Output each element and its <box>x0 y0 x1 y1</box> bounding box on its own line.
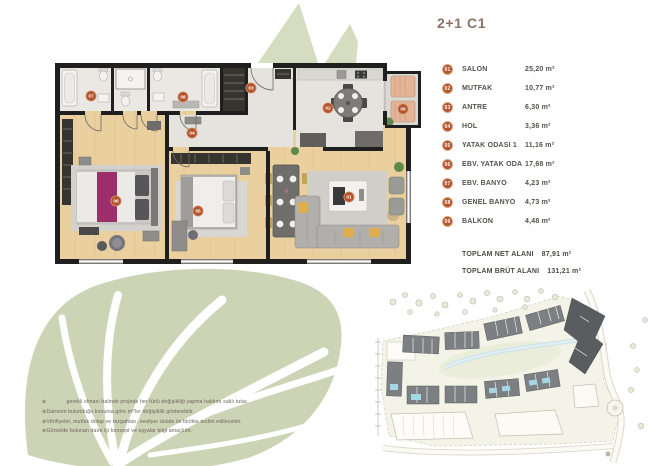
disclaimer-line: ⊛ gerekli olması halinde projede her tür… <box>42 398 248 408</box>
room-number-badge: 02 <box>442 83 453 94</box>
sink <box>153 93 164 101</box>
site-plan <box>375 286 660 464</box>
desk-chair <box>188 230 198 240</box>
disclaimer-line: ⊛Dairenin bulunduğu konuma göre m²'ler d… <box>42 408 248 418</box>
room-label: EBV. BANYO <box>462 180 525 187</box>
room-area: 4,48 m² <box>525 218 551 225</box>
plan-badge-yatak-odasi: 05 <box>193 206 203 216</box>
floor-plan: 01 02 03 04 05 06 07 08 09 <box>55 63 423 265</box>
room-number-badge: 09 <box>442 216 453 227</box>
bathtub <box>62 70 77 106</box>
site-plan-svg <box>375 286 660 464</box>
legend-row: 03ANTRE6,30 m² <box>442 98 555 117</box>
room-area: 4,73 m² <box>525 199 551 206</box>
legend-row: 09BALKON4,48 m² <box>442 212 555 231</box>
room-label: MUTFAK <box>462 85 525 92</box>
room-area: 10,77 m² <box>525 85 555 92</box>
svg-text:02: 02 <box>325 106 331 112</box>
room-area: 6,30 m² <box>525 104 551 111</box>
window <box>79 260 123 264</box>
dresser <box>143 231 159 241</box>
toilet <box>122 96 130 106</box>
sink <box>98 94 109 102</box>
disclaimer-line: ⊛Görselde bulunan daire içi konsept ve e… <box>42 427 248 437</box>
ottoman <box>97 241 107 251</box>
legend-row: 01SALON25,20 m² <box>442 60 555 79</box>
vanity <box>173 101 199 108</box>
room-number-badge: 01 <box>442 64 453 75</box>
plan-badge-salon: 01 <box>344 192 354 202</box>
room-label: GENEL BANYO <box>462 199 525 206</box>
bench <box>79 227 99 235</box>
toilet <box>154 71 162 81</box>
floor-plan-svg: 01 02 03 04 05 06 07 08 09 <box>55 63 423 265</box>
svg-text:06: 06 <box>113 199 119 205</box>
room-number-badge: 06 <box>442 159 453 170</box>
room-number-badge: 04 <box>442 121 453 132</box>
plan-badge-ebv-yatak: 06 <box>111 196 121 206</box>
bedroom-wardrobe <box>171 153 251 164</box>
total-area: 131,21 m² <box>547 268 581 275</box>
disclaimer-notes: ⊛ gerekli olması halinde projede her tür… <box>42 398 248 437</box>
plant-icon <box>394 162 404 172</box>
plan-badge-ebv-banyo: 07 <box>86 91 96 101</box>
total-row: TOPLAM BRÜT ALANI131,21 m² <box>462 263 581 280</box>
window <box>307 260 371 264</box>
room-label: EBV. YATAK ODA <box>462 161 525 168</box>
bathtub <box>202 70 217 107</box>
room-label: YATAK ODASI 1 <box>462 142 525 149</box>
disclaimer-line: ⊛Vitrifiyeler, mutfak dolap ve tezgahlar… <box>42 418 248 428</box>
kitchen-cabinet <box>355 131 383 147</box>
plan-badge-hol: 04 <box>187 128 197 138</box>
room-number-badge: 05 <box>442 140 453 151</box>
total-row: TOPLAM NET ALANI87,91 m² <box>462 246 581 263</box>
svg-text:03: 03 <box>248 86 254 92</box>
road-dot <box>606 452 611 457</box>
room-area: 25,20 m² <box>525 66 555 73</box>
nightstand <box>240 167 250 175</box>
bed <box>181 175 237 229</box>
outbuilding <box>573 384 599 408</box>
room-area: 4,23 m² <box>525 180 551 187</box>
room-number-badge: 03 <box>442 102 453 113</box>
window <box>407 171 411 223</box>
legend-row: 02MUTFAK10,77 m² <box>442 79 555 98</box>
plaza <box>495 410 563 436</box>
plan-badge-balkon: 09 <box>398 104 408 114</box>
kitchen-counter <box>298 69 383 80</box>
hall-console <box>185 117 201 124</box>
toilet <box>100 71 108 81</box>
room-label: BALKON <box>462 218 525 225</box>
svg-text:08: 08 <box>180 95 186 101</box>
plan-badge-genel-banyo: 08 <box>178 92 188 102</box>
window <box>181 260 233 264</box>
svg-text:09: 09 <box>400 107 406 113</box>
room-area: 11,16 m² <box>525 142 554 149</box>
room-number-badge: 07 <box>442 178 453 189</box>
legend-row: 07EBV. BANYO4,23 m² <box>442 174 555 193</box>
area-totals: TOPLAM NET ALANI87,91 m²TOPLAM BRÜT ALAN… <box>462 246 581 280</box>
lounge-chair <box>391 76 415 97</box>
legend-row: 04HOL3,36 m² <box>442 117 555 136</box>
page-title: 2+1 C1 <box>437 15 486 31</box>
nightstand <box>79 157 91 165</box>
room-label: ANTRE <box>462 104 525 111</box>
svg-text:05: 05 <box>195 209 201 215</box>
room-area: 17,68 m² <box>525 161 555 168</box>
room-number-badge: 08 <box>442 197 453 208</box>
plan-badge-antre: 03 <box>246 83 256 93</box>
plan-badge-mutfak: 02 <box>323 103 333 113</box>
leaf-tip-icon <box>258 3 318 63</box>
shower <box>116 69 145 89</box>
room-legend: 01SALON25,20 m²02MUTFAK10,77 m²03ANTRE6,… <box>442 60 555 231</box>
kitchen-cabinet <box>300 133 326 147</box>
room-label: SALON <box>462 66 525 73</box>
brochure-page: 01 02 03 04 05 06 07 08 09 2+1 C1 01SALO… <box>0 0 660 466</box>
plant-icon <box>291 147 299 155</box>
room-area: 3,36 m² <box>525 123 551 130</box>
svg-text:04: 04 <box>189 131 195 137</box>
room-label: HOL <box>462 123 525 130</box>
total-label: TOPLAM NET ALANI <box>462 251 534 258</box>
legend-row: 05YATAK ODASI 111,16 m² <box>442 136 555 155</box>
svg-text:07: 07 <box>88 94 94 100</box>
desk <box>172 221 187 251</box>
legend-row: 06EBV. YATAK ODA17,68 m² <box>442 155 555 174</box>
leaf-tip-icon <box>325 24 358 63</box>
legend-row: 08GENEL BANYO4,73 m² <box>442 193 555 212</box>
svg-text:01: 01 <box>346 195 352 201</box>
total-label: TOPLAM BRÜT ALANI <box>462 268 539 275</box>
total-area: 87,91 m² <box>542 251 572 258</box>
